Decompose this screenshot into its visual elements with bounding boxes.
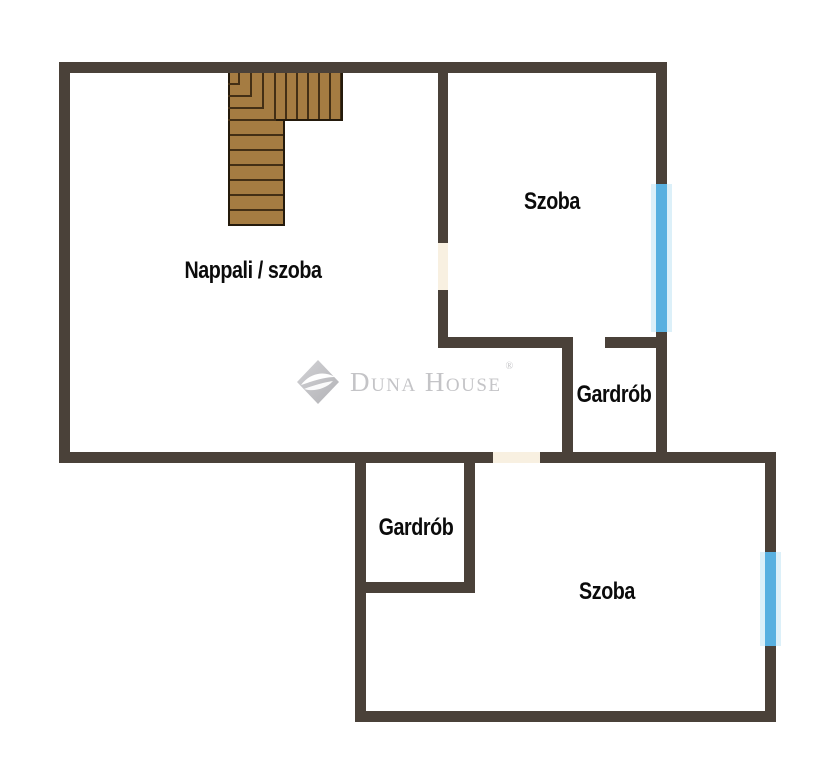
- wall-outer-right-upper: [656, 62, 667, 184]
- door-opening-szoba-top: [438, 243, 448, 290]
- staircase-winder-step: [228, 73, 240, 85]
- room-label-nappali-szoba: Nappali / szoba: [184, 257, 321, 285]
- wall-middle-right: [540, 452, 776, 463]
- room-label-szoba-bottom: Szoba: [579, 578, 635, 606]
- wall-gardrob-right-top-stub: [605, 337, 667, 348]
- wall-outer-top: [59, 62, 667, 73]
- duna-house-diamond-icon: [296, 359, 340, 405]
- wall-outer-left: [59, 62, 70, 463]
- wall-outer-bottom: [355, 711, 776, 722]
- watermark-brand-text: Duna House: [350, 369, 502, 396]
- registered-trademark-symbol: ®: [506, 361, 514, 372]
- room-label-szoba-top: Szoba: [524, 188, 580, 216]
- room-label-gardrob-right: Gardrób: [577, 381, 652, 409]
- window-top-right: [656, 184, 667, 332]
- wall-gardrob-bottom-right: [464, 452, 475, 593]
- window-bottom-right: [765, 552, 776, 646]
- door-opening-szoba-bottom: [493, 452, 540, 463]
- floorplan: Nappali / szoba Szoba Gardrób Gardrób Sz…: [0, 0, 822, 768]
- wall-gardrob-bottom-bottom: [355, 582, 475, 593]
- room-label-gardrob-bottom: Gardrób: [379, 514, 454, 542]
- wall-outer-right-bottom-upper: [765, 452, 776, 552]
- wall-middle-left: [59, 452, 493, 463]
- wall-outer-right-middle: [656, 332, 667, 463]
- staircase-upper-treads: [276, 73, 341, 119]
- wall-szoba-top-bottom: [438, 337, 573, 348]
- wall-gardrob-right-left: [562, 337, 573, 463]
- staircase-lower-flight: [228, 121, 285, 226]
- wall-nappali-szoba-divider-upper: [438, 62, 448, 243]
- watermark: Duna House ®: [296, 357, 513, 407]
